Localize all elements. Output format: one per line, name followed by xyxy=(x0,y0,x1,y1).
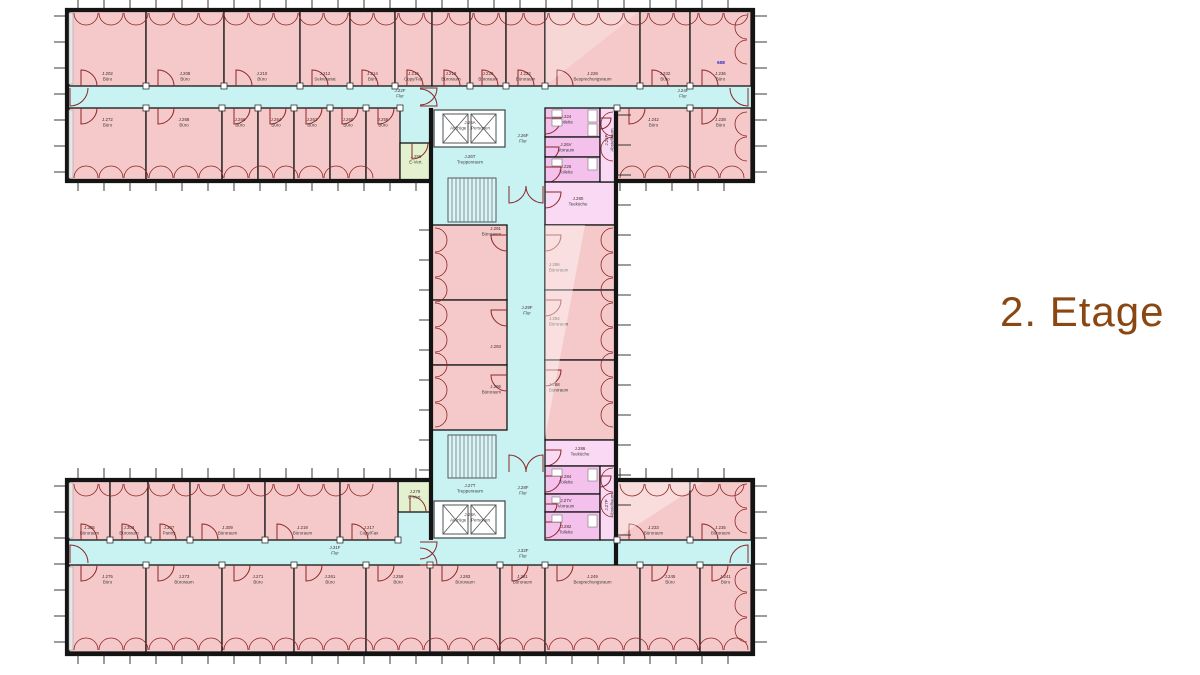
svg-text:Vorraum: Vorraum xyxy=(558,148,575,153)
room-J.220: J.220Büroraum xyxy=(470,11,506,86)
svg-text:Abstellraum: Abstellraum xyxy=(610,493,615,517)
room-J.279: J.279E-Vert. xyxy=(398,481,432,512)
svg-text:Büro: Büro xyxy=(103,580,113,585)
room-J.271: J.271Büro xyxy=(222,565,294,652)
svg-text:J.32F: J.32F xyxy=(518,548,529,553)
svg-text:Büro: Büro xyxy=(271,123,281,128)
svg-text:Büro: Büro xyxy=(103,77,113,82)
svg-text:Flur: Flur xyxy=(331,551,339,556)
room-J.295: J.295Büroraum xyxy=(432,365,507,430)
svg-text:Aufzüge f. Personen: Aufzüge f. Personen xyxy=(450,126,490,131)
svg-text:J.282: J.282 xyxy=(561,524,572,529)
svg-text:J.275: J.275 xyxy=(102,574,113,579)
svg-text:J.309: J.309 xyxy=(222,525,233,530)
room-J.242: J.242Büro xyxy=(617,108,690,180)
svg-text:Büro: Büro xyxy=(378,123,388,128)
room-J.217: J.217Copy/Fax xyxy=(340,481,398,540)
svg-text:J.224: J.224 xyxy=(561,114,572,119)
svg-text:Büroraum: Büroraum xyxy=(218,531,238,536)
room-J.286: J.286Teeküche xyxy=(545,440,617,466)
svg-text:J.29F: J.29F xyxy=(522,305,533,310)
svg-text:J.26T: J.26T xyxy=(465,154,476,159)
svg-text:Büro: Büro xyxy=(716,123,726,128)
room-J.260: J.260Büro xyxy=(330,108,366,180)
svg-text:J.233: J.233 xyxy=(648,525,659,530)
svg-text:E-Vert.: E-Vert. xyxy=(408,495,421,500)
svg-text:J.208: J.208 xyxy=(180,71,191,76)
svg-text:J.212: J.212 xyxy=(320,71,331,76)
svg-text:J.222: J.222 xyxy=(520,71,531,76)
svg-text:Büroraum: Büroraum xyxy=(441,77,461,82)
room-J.216: J.216Copy/Fax xyxy=(395,11,432,86)
svg-text:Büro: Büro xyxy=(325,580,335,585)
svg-text:J.232: J.232 xyxy=(660,71,671,76)
svg-text:J.219: J.219 xyxy=(297,525,308,530)
svg-text:J.291: J.291 xyxy=(490,226,501,231)
room-J.210: J.210Büro xyxy=(224,11,300,86)
svg-text:Büroraum: Büroraum xyxy=(174,580,194,585)
room-J.268: J.268Büro xyxy=(146,108,222,180)
room-J.222: J.222Büroraum xyxy=(506,11,545,86)
svg-text:J.202: J.202 xyxy=(102,71,113,76)
svg-text:J.245: J.245 xyxy=(665,574,676,579)
svg-text:Büroraum: Büroraum xyxy=(478,77,498,82)
floor-plan: J.202BüroJ.208BüroJ.210BüroJ.212Sekretar… xyxy=(0,0,1200,675)
svg-text:J.242: J.242 xyxy=(648,117,659,122)
svg-text:Treppenraum: Treppenraum xyxy=(457,160,484,165)
svg-text:Flur: Flur xyxy=(519,554,527,559)
room-J.218: J.218Büroraum xyxy=(432,11,470,86)
svg-text:Flur: Flur xyxy=(519,139,527,144)
svg-text:Büroraum: Büroraum xyxy=(119,531,139,536)
room-J.280: J.280Teeküche xyxy=(545,182,617,225)
svg-text:Büroraum: Büroraum xyxy=(482,390,502,395)
svg-text:J.22F: J.22F xyxy=(395,88,406,93)
svg-text:J.238: J.238 xyxy=(715,117,726,122)
svg-text:J.31F: J.31F xyxy=(330,545,341,550)
svg-text:Besprechungsraum: Besprechungsraum xyxy=(573,77,611,82)
room-J.261: J.261Büro xyxy=(294,565,366,652)
svg-text:Büro: Büro xyxy=(103,123,113,128)
svg-text:J.258: J.258 xyxy=(378,117,389,122)
svg-text:Büroraum: Büroraum xyxy=(644,531,664,536)
svg-text:J.279: J.279 xyxy=(410,489,421,494)
svg-text:Büro: Büro xyxy=(307,123,317,128)
room-J.202: J.202Büro xyxy=(69,11,146,86)
svg-text:Toilette: Toilette xyxy=(559,170,573,175)
room-J.249: J.249Besprechungsraum xyxy=(545,565,640,652)
svg-text:Teeküche: Teeküche xyxy=(571,452,590,457)
room-J.264: J.264Büro xyxy=(258,108,294,180)
svg-text:J.236: J.236 xyxy=(715,71,726,76)
svg-text:J.26A: J.26A xyxy=(464,120,475,125)
svg-text:J.256: J.256 xyxy=(411,154,422,159)
svg-text:Pantry: Pantry xyxy=(163,531,176,536)
stairs xyxy=(448,435,496,478)
svg-text:J.268: J.268 xyxy=(179,117,190,122)
plan-annotation: 608 xyxy=(717,60,725,65)
svg-text:J.259: J.259 xyxy=(393,574,404,579)
svg-text:Teeküche: Teeküche xyxy=(569,202,588,207)
svg-text:Sekretariat: Sekretariat xyxy=(314,77,336,82)
svg-text:Büro: Büro xyxy=(253,580,263,585)
stairs xyxy=(448,178,496,222)
svg-text:J.286: J.286 xyxy=(575,446,586,451)
svg-text:J.27T: J.27T xyxy=(465,483,476,488)
svg-text:J.272: J.272 xyxy=(102,117,113,122)
room-J.256: J.256E-Vert. xyxy=(400,143,432,180)
svg-text:Büro: Büro xyxy=(716,77,726,82)
svg-text:J.216: J.216 xyxy=(408,71,419,76)
room-J.258: J.258Büro xyxy=(366,108,400,180)
svg-text:Abstellraum: Abstellraum xyxy=(610,128,615,152)
svg-text:Flur: Flur xyxy=(396,94,404,99)
room-J.272: J.272Büro xyxy=(69,108,146,180)
svg-text:Büro: Büro xyxy=(368,77,378,82)
svg-text:Büro: Büro xyxy=(179,123,189,128)
svg-text:Flur: Flur xyxy=(679,94,687,99)
room-J.212: J.212Sekretariat xyxy=(300,11,350,86)
room-J.262: J.262Büro xyxy=(294,108,330,180)
svg-text:J.266: J.266 xyxy=(235,117,246,122)
svg-text:Büro: Büro xyxy=(721,580,731,585)
svg-text:J.273: J.273 xyxy=(179,574,190,579)
svg-text:J.284: J.284 xyxy=(561,474,572,479)
svg-text:J.261: J.261 xyxy=(325,574,336,579)
svg-text:Copy/Fax: Copy/Fax xyxy=(404,77,424,82)
room-J.293: J.293 xyxy=(432,300,507,365)
svg-text:J.305: J.305 xyxy=(84,525,95,530)
svg-text:J.264: J.264 xyxy=(271,117,282,122)
room-J.309: J.309Büroraum xyxy=(190,481,265,540)
svg-text:Toilette: Toilette xyxy=(559,480,573,485)
svg-text:J.307: J.307 xyxy=(164,525,175,530)
svg-text:Treppenraum: Treppenraum xyxy=(457,489,484,494)
svg-text:J.28A: J.28A xyxy=(464,512,475,517)
svg-text:J.262: J.262 xyxy=(307,117,318,122)
svg-text:Büroraum: Büroraum xyxy=(516,77,536,82)
svg-text:J.283: J.283 xyxy=(460,574,471,579)
svg-text:Büro: Büro xyxy=(649,123,659,128)
svg-text:J.228: J.228 xyxy=(587,71,598,76)
svg-text:Copy/Fax: Copy/Fax xyxy=(360,531,380,536)
svg-text:J.293: J.293 xyxy=(490,344,501,349)
svg-text:Aufzüge f. Personen: Aufzüge f. Personen xyxy=(450,518,490,523)
room-J.291: J.291Büroraum xyxy=(432,225,507,300)
svg-text:Büro: Büro xyxy=(180,77,190,82)
floor-title: 2. Etage xyxy=(1000,288,1164,336)
svg-text:J.27P: J.27P xyxy=(604,499,609,510)
room-J.208: J.208Büro xyxy=(146,11,224,86)
svg-text:Büroraum: Büroraum xyxy=(455,580,475,585)
svg-text:Büro: Büro xyxy=(665,580,675,585)
svg-text:J.260: J.260 xyxy=(343,117,354,122)
svg-text:Besprechungsraum: Besprechungsraum xyxy=(573,580,611,585)
svg-text:Büro: Büro xyxy=(235,123,245,128)
room-J.214: J.214Büro xyxy=(350,11,395,86)
room-J.236: J.236Büro xyxy=(690,11,751,86)
svg-text:J.24F: J.24F xyxy=(678,88,689,93)
svg-text:E-Vert.: E-Vert. xyxy=(409,160,422,165)
svg-text:J.26V: J.26V xyxy=(560,142,571,147)
room-J.259: J.259Büro xyxy=(366,565,430,652)
svg-text:J.235: J.235 xyxy=(715,525,726,530)
svg-text:J.226: J.226 xyxy=(561,164,572,169)
room-J.307: J.307Pantry xyxy=(148,481,190,540)
svg-text:J.295: J.295 xyxy=(490,384,501,389)
svg-text:J.280: J.280 xyxy=(573,196,584,201)
svg-text:Büroraum: Büroraum xyxy=(711,531,731,536)
svg-text:J.218: J.218 xyxy=(446,71,457,76)
svg-text:Büroraum: Büroraum xyxy=(482,232,502,237)
svg-text:J.27V: J.27V xyxy=(560,498,571,503)
svg-text:J.28F: J.28F xyxy=(518,485,529,490)
svg-text:Büro: Büro xyxy=(343,123,353,128)
svg-text:J.26F: J.26F xyxy=(518,133,529,138)
svg-text:Flur: Flur xyxy=(523,311,531,316)
svg-text:Büroraum: Büroraum xyxy=(80,531,100,536)
svg-text:Vorraum: Vorraum xyxy=(558,504,575,509)
room-J.273: J.273Büroraum xyxy=(146,565,222,652)
svg-text:J.220: J.220 xyxy=(483,71,494,76)
svg-text:J.303: J.303 xyxy=(124,525,135,530)
svg-text:J.241: J.241 xyxy=(720,574,731,579)
room-J.232: J.232Büro xyxy=(640,11,690,86)
svg-text:Büroraum: Büroraum xyxy=(513,580,533,585)
room-J.303: J.303Büroraum xyxy=(110,481,148,540)
svg-text:J.271: J.271 xyxy=(253,574,264,579)
svg-text:Flur: Flur xyxy=(519,491,527,496)
svg-text:J.249: J.249 xyxy=(587,574,598,579)
svg-text:Büro: Büro xyxy=(660,77,670,82)
svg-text:J.214: J.214 xyxy=(367,71,378,76)
svg-text:Büro: Büro xyxy=(393,580,403,585)
svg-text:Büroraum: Büroraum xyxy=(293,531,313,536)
svg-text:Toilette: Toilette xyxy=(559,530,573,535)
svg-text:J.210: J.210 xyxy=(257,71,268,76)
room-J.241: J.241Büro xyxy=(700,565,751,652)
svg-text:J.281: J.281 xyxy=(517,574,528,579)
svg-text:J.217: J.217 xyxy=(364,525,375,530)
slide: J.202BüroJ.208BüroJ.210BüroJ.212Sekretar… xyxy=(0,0,1200,675)
svg-text:Büro: Büro xyxy=(257,77,267,82)
room-J.219: J.219Büroraum xyxy=(265,481,340,540)
